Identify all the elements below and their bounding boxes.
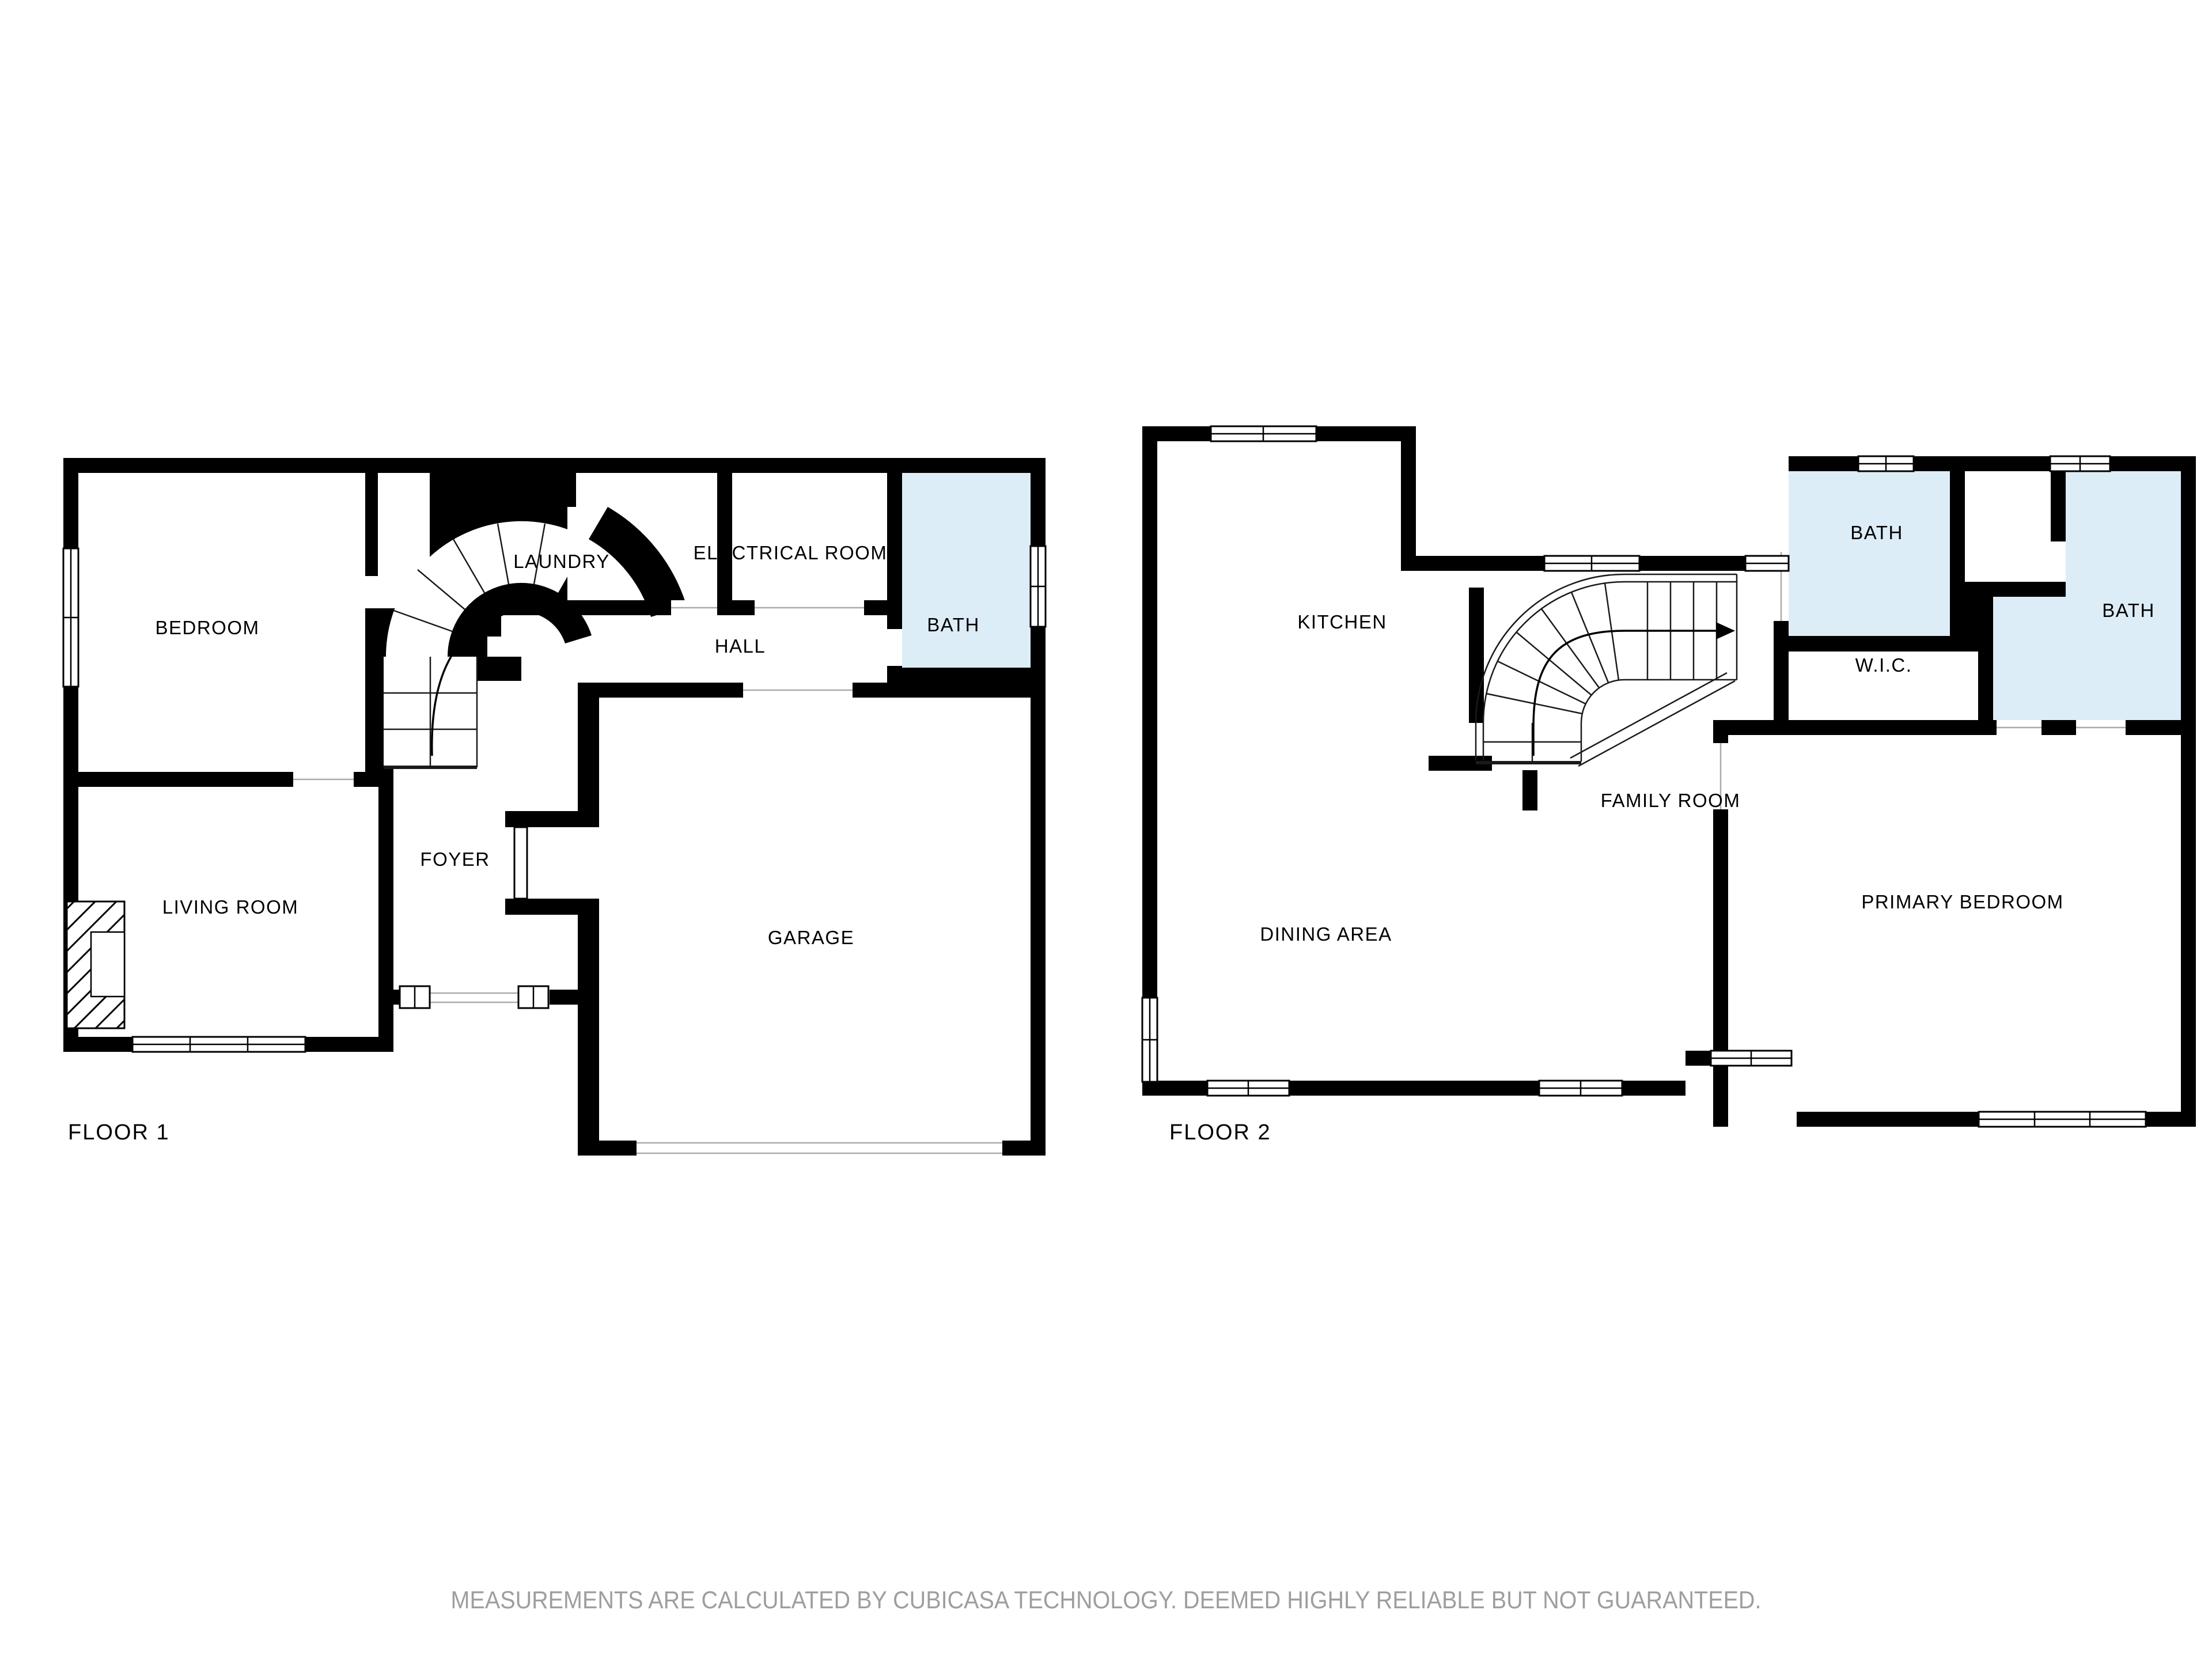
garage-door bbox=[637, 1141, 1002, 1156]
window-symbol bbox=[1711, 1051, 1791, 1066]
room-bath-f1 bbox=[902, 473, 1031, 668]
room-label-bedroom: BEDROOM bbox=[155, 617, 259, 638]
room-label-wic: W.I.C. bbox=[1855, 654, 1912, 676]
window-symbol bbox=[63, 548, 78, 687]
floor2-plan: KITCHEN BATH BATH W.I.C. FAMILY ROOM DIN… bbox=[1142, 426, 2196, 1145]
room-label-dining-area: DINING AREA bbox=[1260, 923, 1392, 945]
window-symbol bbox=[1211, 426, 1316, 441]
window-symbol bbox=[1031, 546, 1046, 627]
room-label-kitchen: KITCHEN bbox=[1297, 611, 1387, 632]
room-label-bath-upper: BATH bbox=[1850, 522, 1903, 543]
room-label-foyer: FOYER bbox=[420, 849, 490, 870]
footer-disclaimer: MEASUREMENTS ARE CALCULATED BY CUBICASA … bbox=[451, 1586, 1762, 1613]
room-electrical bbox=[732, 473, 887, 600]
garage-niche bbox=[505, 811, 599, 915]
window-symbol bbox=[132, 1037, 305, 1052]
room-toilet bbox=[1965, 471, 2051, 582]
room-label-laundry: LAUNDRY bbox=[513, 551, 610, 572]
room-bath-upper bbox=[1789, 471, 1950, 636]
window-symbol bbox=[1745, 556, 1789, 571]
window-symbol bbox=[2050, 456, 2110, 471]
floor1-title: FLOOR 1 bbox=[68, 1120, 170, 1145]
window-symbol bbox=[1979, 1112, 2146, 1127]
room-label-electrical-room: ELECTRICAL ROOM bbox=[694, 542, 888, 563]
room-label-living-room: LIVING ROOM bbox=[162, 896, 299, 918]
room-garage bbox=[599, 698, 1031, 1141]
window-symbol bbox=[1544, 556, 1639, 571]
floor-plan-canvas: BEDROOM LAUNDRY ELECTRICAL ROOM BATH HAL… bbox=[0, 0, 2212, 1659]
floor1-plan: BEDROOM LAUNDRY ELECTRICAL ROOM BATH HAL… bbox=[63, 458, 1046, 1156]
window-symbol bbox=[1858, 456, 1914, 471]
room-primary-bedroom bbox=[1728, 735, 2181, 1112]
room-kitchen bbox=[1157, 441, 1401, 1081]
room-label-bath-f1: BATH bbox=[927, 614, 980, 635]
room-label-primary-bedroom: PRIMARY BEDROOM bbox=[1861, 891, 2063, 912]
room-label-hall: HALL bbox=[715, 635, 766, 657]
room-dining bbox=[1401, 571, 1685, 1081]
window-symbol bbox=[1142, 998, 1157, 1082]
room-label-garage: GARAGE bbox=[768, 927, 854, 948]
floor2-title: FLOOR 2 bbox=[1169, 1120, 1271, 1145]
window-symbol bbox=[1207, 1081, 1289, 1096]
fireplace-icon bbox=[67, 902, 124, 1028]
room-label-bath-primary: BATH bbox=[2102, 600, 2155, 621]
window-symbol bbox=[1539, 1081, 1622, 1096]
room-label-family-room: FAMILY ROOM bbox=[1601, 790, 1741, 811]
